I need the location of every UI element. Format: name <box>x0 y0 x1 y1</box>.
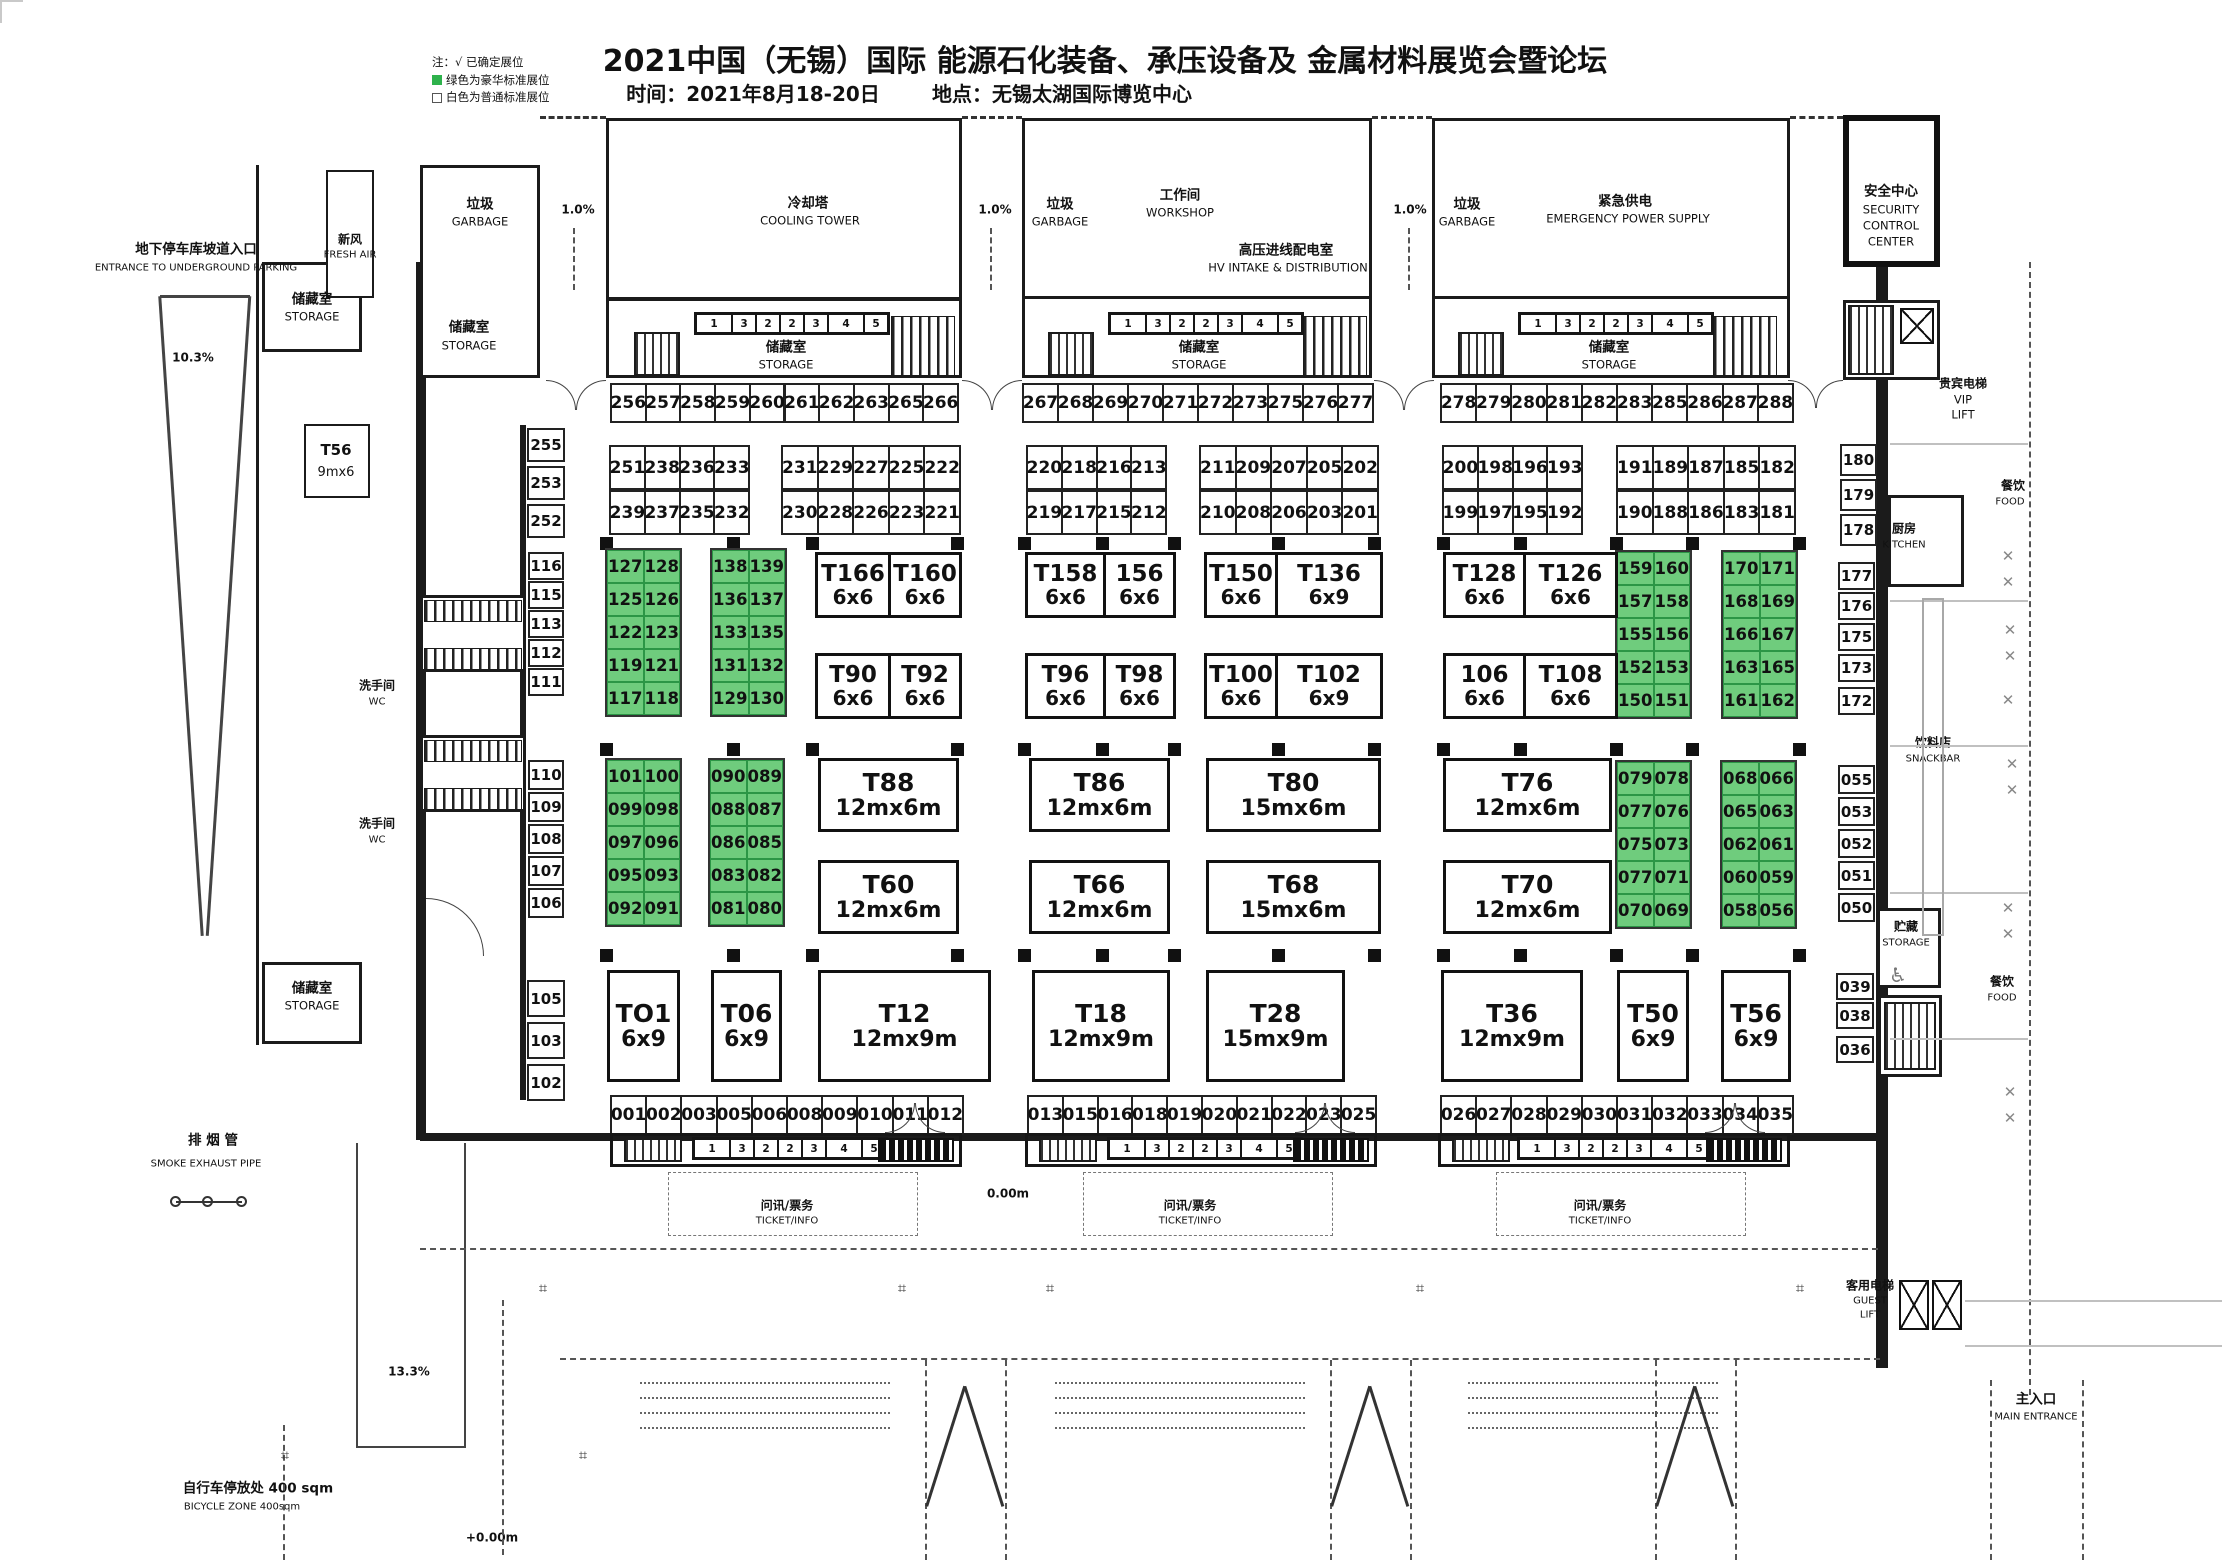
food_zh-label: 餐饮 <box>2001 479 2025 492</box>
booth-083: 083 <box>710 859 747 892</box>
booth-066: 066 <box>1759 762 1796 795</box>
food_zh-label: 餐饮 <box>1990 975 2014 988</box>
booth-T100: T1006x6 <box>1207 656 1275 716</box>
booth-T66: T6612mx6m <box>1029 860 1170 934</box>
booth-277: 277 <box>1337 383 1374 423</box>
stairs-icon <box>1458 332 1504 376</box>
booth-032: 032 <box>1651 1095 1688 1135</box>
booth-T56-side-size: 9mx6 <box>318 466 355 480</box>
guest-lift-icon <box>1899 1280 1929 1330</box>
booth-208: 208 <box>1235 490 1273 535</box>
ramp_pct-label: 1.0% <box>561 203 594 216</box>
booth-079: 079 <box>1617 762 1654 795</box>
stairs-icon <box>1848 305 1894 375</box>
booth-230: 230 <box>781 490 819 535</box>
booth-188: 188 <box>1652 490 1690 535</box>
dashed-boundary <box>925 1360 927 1560</box>
booth-086: 086 <box>710 826 747 859</box>
entrance-arrow-icon <box>1331 1386 1371 1507</box>
dashed-boundary <box>560 1358 1880 1360</box>
booth-T28: T2815mx9m <box>1206 970 1345 1082</box>
booth-198: 198 <box>1477 445 1514 490</box>
booth-130: 130 <box>749 682 786 715</box>
booth-202: 202 <box>1341 445 1379 490</box>
booth-036: 036 <box>1836 1036 1874 1063</box>
door-arc-icon <box>546 380 576 410</box>
mini-booth: 4 <box>1243 315 1277 332</box>
queue-rail-line <box>640 1382 890 1384</box>
booth-195: 195 <box>1512 490 1549 535</box>
column-marker <box>1437 949 1450 962</box>
legend-green-label: 绿色为豪华标准展位 <box>446 73 550 89</box>
booth-T150: T1506x6 <box>1207 555 1275 615</box>
booth-031: 031 <box>1616 1095 1653 1135</box>
truck-ramp <box>356 1143 466 1448</box>
booth-207: 207 <box>1270 445 1308 490</box>
column-marker <box>1168 949 1181 962</box>
booth-260: 260 <box>749 383 786 423</box>
booth-156: 156 <box>1654 618 1691 651</box>
booth-232: 232 <box>713 490 750 535</box>
kitchen_zh-label: 厨房 <box>1892 522 1916 535</box>
column-marker <box>1368 537 1381 550</box>
ticket_zh-label: 问讯/票务 <box>1164 1199 1216 1212</box>
booth-203: 203 <box>1306 490 1344 535</box>
booth-201: 201 <box>1341 490 1379 535</box>
booth-T76: T7612mx6m <box>1443 758 1612 832</box>
door-arc-icon <box>1788 380 1816 408</box>
door-marker-icon: ⌗ <box>1796 1279 1804 1297</box>
booth-253: 253 <box>527 466 565 500</box>
booth-090: 090 <box>710 760 747 793</box>
table-icon: ✕ <box>2004 621 2017 639</box>
booth-187: 187 <box>1687 445 1725 490</box>
booth-009: 009 <box>821 1095 858 1135</box>
booth-282: 282 <box>1581 383 1618 423</box>
legend: 注：√ 已确定展位 绿色为豪华标准展位 白色为普通标准展位 <box>432 55 550 108</box>
booth-219: 219 <box>1026 490 1063 535</box>
column-marker <box>1437 537 1450 550</box>
booth-029: 029 <box>1546 1095 1583 1135</box>
dashed-boundary <box>1990 1380 1992 1560</box>
hv_zh-label: 高压进线配电室 <box>1239 244 1334 259</box>
door-marker-icon: ⌗ <box>1416 1279 1424 1297</box>
table-icon: ✕ <box>2002 573 2015 591</box>
booth-131: 131 <box>712 649 749 682</box>
cooling_zh-label: 冷却塔 <box>788 197 829 212</box>
booth-027: 027 <box>1475 1095 1512 1135</box>
booth-093: 093 <box>644 859 681 892</box>
booth-155: 155 <box>1617 618 1654 651</box>
wc-stalls-icon <box>1303 316 1367 376</box>
dashed-boundary <box>1735 1360 1737 1560</box>
booth-T160: T1606x6 <box>888 555 959 615</box>
booth-073: 073 <box>1654 828 1691 861</box>
storage_zh-label: 储藏室 <box>292 982 333 997</box>
booth-T70: T7012mx6m <box>1443 860 1612 934</box>
booth-107: 107 <box>528 856 564 886</box>
booth-T128: T1286x6 <box>1446 555 1523 615</box>
booth-206: 206 <box>1270 490 1308 535</box>
booth-165: 165 <box>1760 651 1797 684</box>
booth-262: 262 <box>818 383 855 423</box>
booth-T12: T1212mx9m <box>818 970 991 1082</box>
booth-055: 055 <box>1838 765 1875 794</box>
column-marker <box>1514 537 1527 550</box>
storage_zh-label: 储藏室 <box>449 321 490 336</box>
cooling_en-label: COOLING TOWER <box>760 215 860 228</box>
wc-stalls-icon <box>1713 316 1777 376</box>
booth-T92: T926x6 <box>888 656 959 716</box>
booth-T108: T1086x6 <box>1523 656 1615 716</box>
booth-098: 098 <box>644 793 681 826</box>
booth-001: 001 <box>610 1095 647 1135</box>
mini-booth: 3 <box>1629 315 1651 332</box>
booth-226: 226 <box>852 490 890 535</box>
booth-101: 101 <box>607 760 644 793</box>
booth-T126: T1266x6 <box>1523 555 1615 615</box>
booth-015: 015 <box>1062 1095 1099 1135</box>
booth-163: 163 <box>1723 651 1760 684</box>
booth-256: 256 <box>610 383 647 423</box>
booth-225: 225 <box>888 445 926 490</box>
door-marker-icon: ⌗ <box>898 1279 906 1297</box>
wc_en-label: WC <box>369 697 386 708</box>
booth-268: 268 <box>1057 383 1094 423</box>
booth-050: 050 <box>1838 893 1875 922</box>
door-arc-icon <box>1404 380 1434 410</box>
booth-121: 121 <box>644 649 681 682</box>
column-marker <box>1610 537 1623 550</box>
booth-087: 087 <box>747 793 784 826</box>
fresh_en-label: FRESH AIR <box>324 250 377 261</box>
booth-103: 103 <box>527 1022 565 1059</box>
column-marker <box>1368 949 1381 962</box>
booth-T166: T1666x6 <box>818 555 888 615</box>
parking_zh-label: 地下停车库坡道入口 <box>135 243 257 258</box>
booth-167: 167 <box>1760 618 1797 651</box>
guest_en1-label: GUEST <box>1853 1296 1887 1307</box>
booth-122: 122 <box>607 616 644 649</box>
booth-252: 252 <box>527 504 565 538</box>
column-marker <box>806 537 819 550</box>
booth-091: 091 <box>644 892 681 925</box>
mini-booth: 3 <box>1147 315 1169 332</box>
door-marker-icon: ⌗ <box>281 1446 289 1464</box>
booth-T98: T986x6 <box>1103 656 1173 716</box>
wc-stalls-icon <box>424 788 522 810</box>
door-arc-icon <box>992 380 1022 410</box>
legend-white: 白色为普通标准展位 <box>432 90 550 106</box>
booth-171: 171 <box>1760 552 1797 585</box>
booth-185: 185 <box>1723 445 1761 490</box>
booth-069: 069 <box>1654 894 1691 927</box>
gray-guide-line <box>1890 892 2028 894</box>
booth-071: 071 <box>1654 861 1691 894</box>
booth-006: 006 <box>751 1095 788 1135</box>
stairs-icon <box>1048 332 1094 376</box>
storage_zh-label: 储藏室 <box>1589 341 1630 356</box>
storage_en-label: STORAGE <box>759 359 814 372</box>
booth-059: 059 <box>1759 861 1796 894</box>
booth-235: 235 <box>679 490 716 535</box>
booth-190: 190 <box>1616 490 1654 535</box>
workshop_en-label: WORKSHOP <box>1146 207 1214 220</box>
booth-082: 082 <box>747 859 784 892</box>
booth-028: 028 <box>1510 1095 1547 1135</box>
page-title: 2021中国（无锡）国际 能源石化装备、承压设备及 金属材料展览会暨论坛 <box>603 36 1607 80</box>
queue-rail-line <box>640 1427 890 1429</box>
booth-150: 150 <box>1617 684 1654 717</box>
column-marker <box>600 949 613 962</box>
booth-002: 002 <box>645 1095 682 1135</box>
security_en1-label: SECURITY <box>1863 204 1919 217</box>
booth-077: 077 <box>1617 861 1654 894</box>
t-booth-pair: T966x6T986x6 <box>1025 653 1176 719</box>
column-marker <box>1793 537 1806 550</box>
main_zh-label: 主入口 <box>2016 1393 2057 1408</box>
queue-rail-line <box>1055 1382 1305 1384</box>
booth-039: 039 <box>1836 973 1874 1000</box>
booth-056: 056 <box>1759 894 1796 927</box>
column-marker <box>1514 949 1527 962</box>
booth-118: 118 <box>644 682 681 715</box>
booth-153: 153 <box>1654 651 1691 684</box>
date-label: 时间：2021年8月18-20日 <box>626 78 880 107</box>
booth-T158: T1586x6 <box>1028 555 1103 615</box>
booth-070: 070 <box>1617 894 1654 927</box>
t-booth-pair: T1286x6T1266x6 <box>1443 552 1618 618</box>
vip_en2-label: LIFT <box>1951 409 1974 422</box>
storage_en-label: STORAGE <box>285 311 340 324</box>
legend-white-label: 白色为普通标准展位 <box>446 90 550 106</box>
booth-278: 278 <box>1440 383 1477 423</box>
fresh_zh-label: 新风 <box>338 233 362 246</box>
booth-211: 211 <box>1199 445 1237 490</box>
booth-160: 160 <box>1654 552 1691 585</box>
food_en-label: FOOD <box>1995 497 2024 508</box>
booth-060: 060 <box>1722 861 1759 894</box>
booth-285: 285 <box>1651 383 1688 423</box>
booth-127: 127 <box>607 550 644 583</box>
column-marker <box>1610 743 1623 756</box>
booth-287: 287 <box>1722 383 1759 423</box>
ramp_pct-label: 1.0% <box>1393 203 1426 216</box>
table-icon: ✕ <box>2002 691 2015 709</box>
booth-199: 199 <box>1442 490 1479 535</box>
booth-076: 076 <box>1654 795 1691 828</box>
security_en2-label: CONTROL <box>1863 220 1919 233</box>
kitchen_en-label: KITCHEN <box>1882 540 1925 551</box>
entrance-arrow-icon <box>964 1386 1004 1507</box>
door-arc-icon <box>1374 380 1404 410</box>
parking-ramp-line <box>159 296 204 936</box>
column-marker <box>1793 949 1806 962</box>
booth-175: 175 <box>1838 623 1875 651</box>
booth-182: 182 <box>1758 445 1796 490</box>
booth-106: 1066x6 <box>1446 656 1523 716</box>
mini-booth: 2 <box>1171 315 1193 332</box>
mini-booth: 2 <box>757 315 779 332</box>
dashed-boundary <box>990 228 992 290</box>
top-dashed-line <box>962 116 1022 119</box>
parking-ramp-line <box>160 295 250 298</box>
column-marker <box>1686 537 1699 550</box>
booth-152: 152 <box>1617 651 1654 684</box>
booth-251: 251 <box>609 445 646 490</box>
mini-booth: 1 <box>697 315 731 332</box>
booth-267: 267 <box>1022 383 1059 423</box>
door-arc-icon <box>426 898 484 956</box>
door-arc-icon <box>962 380 992 410</box>
dashed-boundary <box>420 1248 1878 1250</box>
booth-065: 065 <box>1722 795 1759 828</box>
dashed-boundary <box>1410 1360 1412 1560</box>
booth-105: 105 <box>527 980 565 1017</box>
queue-rail-line <box>1055 1412 1305 1414</box>
column-marker <box>1096 537 1109 550</box>
t-booth-pair: T906x6T926x6 <box>815 653 962 719</box>
booth-205: 205 <box>1306 445 1344 490</box>
column-marker <box>1368 743 1381 756</box>
table-icon: ✕ <box>2002 899 2015 917</box>
dashed-boundary <box>1655 1360 1657 1560</box>
stairs-icon <box>1884 1002 1936 1070</box>
legend-confirmed: 注：√ 已确定展位 <box>432 55 550 71</box>
stairs-icon <box>624 1138 682 1162</box>
stairs-icon <box>1452 1138 1510 1162</box>
booth-263: 263 <box>853 383 890 423</box>
parking-ramp-line <box>206 296 251 936</box>
emergency_zh-label: 紧急供电 <box>1598 195 1652 210</box>
booth-210: 210 <box>1199 490 1237 535</box>
booth-113: 113 <box>528 610 564 638</box>
column-marker <box>1018 949 1031 962</box>
workshop_zh-label: 工作间 <box>1160 189 1201 204</box>
storage_en-label: STORAGE <box>1882 938 1930 949</box>
booth-T18: T1812mx9m <box>1032 970 1170 1082</box>
wall-segment <box>416 262 426 1140</box>
booth-128: 128 <box>644 550 681 583</box>
column-marker <box>1793 743 1806 756</box>
booth-132: 132 <box>749 649 786 682</box>
booth-169: 169 <box>1760 585 1797 618</box>
column-marker <box>951 949 964 962</box>
booth-223: 223 <box>888 490 926 535</box>
dashed-boundary <box>1005 1360 1007 1560</box>
booth-077: 077 <box>1617 795 1654 828</box>
booth-259: 259 <box>714 383 751 423</box>
booth-220: 220 <box>1026 445 1063 490</box>
booth-217: 217 <box>1061 490 1098 535</box>
booth-T88: T8812mx6m <box>818 758 959 832</box>
booth-129: 129 <box>712 682 749 715</box>
exhibition-floor-plan: 2021中国（无锡）国际 能源石化装备、承压设备及 金属材料展览会暨论坛 时间：… <box>0 0 2222 1560</box>
entrance-arrow-icon <box>926 1386 966 1507</box>
booth-058: 058 <box>1722 894 1759 927</box>
booth-T56-side-label: T56 <box>320 442 351 459</box>
booth-133: 133 <box>712 616 749 649</box>
booth-166: 166 <box>1723 618 1760 651</box>
entrance-arrow-icon <box>1656 1386 1696 1507</box>
booth-138: 138 <box>712 550 749 583</box>
booth-173: 173 <box>1838 654 1875 682</box>
table-icon: ✕ <box>2002 547 2015 565</box>
booth-068: 068 <box>1722 762 1759 795</box>
vip_en1-label: VIP <box>1954 394 1972 407</box>
guest_en2-label: LIFT <box>1860 1310 1880 1321</box>
pct133-label: 13.3% <box>388 1365 430 1378</box>
booth-052: 052 <box>1838 829 1875 858</box>
pct103-label: 10.3% <box>172 351 214 364</box>
bike_zh-label: 自行车停放处 400 sqm <box>183 1482 333 1497</box>
booth-TO1: TO16x9 <box>607 970 680 1082</box>
booth-003: 003 <box>680 1095 717 1135</box>
booth-221: 221 <box>923 490 961 535</box>
booth-168: 168 <box>1723 585 1760 618</box>
booth-137: 137 <box>749 583 786 616</box>
booth-075: 075 <box>1617 828 1654 861</box>
door-marker-icon: ⌗ <box>1046 1279 1054 1297</box>
booth-229: 229 <box>817 445 855 490</box>
booth-257: 257 <box>645 383 682 423</box>
mini-booth-row: 1322345 <box>694 312 890 335</box>
booth-126: 126 <box>644 583 681 616</box>
booth-157: 157 <box>1617 585 1654 618</box>
booth-216: 216 <box>1096 445 1133 490</box>
booth-092: 092 <box>607 892 644 925</box>
booth-218: 218 <box>1061 445 1098 490</box>
column-marker <box>806 949 819 962</box>
mini-booth: 2 <box>1605 315 1627 332</box>
gray-guide-line <box>1890 600 2028 602</box>
column-marker <box>1514 743 1527 756</box>
column-marker <box>1018 537 1031 550</box>
smoke_zh-label: 排 烟 管 <box>188 1134 238 1149</box>
booth-280: 280 <box>1510 383 1547 423</box>
table-icon: ✕ <box>2004 1083 2017 1101</box>
queue-rail-line <box>1468 1382 1718 1384</box>
booth-T36: T3612mx9m <box>1441 970 1583 1082</box>
mini-booth: 2 <box>1195 315 1217 332</box>
booth-228: 228 <box>817 490 855 535</box>
entrance-arrow-icon <box>1369 1386 1409 1507</box>
booth-108: 108 <box>528 824 564 854</box>
column-marker <box>1168 743 1181 756</box>
mini-booth: 3 <box>805 315 827 332</box>
dashed-boundary <box>573 228 575 290</box>
booth-109: 109 <box>528 792 564 822</box>
top-dashed-line <box>1372 116 1432 119</box>
legend-confirmed-label: 注：√ 已确定展位 <box>432 55 523 71</box>
door-arc-icon <box>1816 380 1844 408</box>
booth-265: 265 <box>888 383 925 423</box>
mini-booth: 4 <box>829 315 863 332</box>
garbage_zh-label: 垃圾 <box>1047 198 1074 213</box>
booth-078: 078 <box>1654 762 1691 795</box>
booth-238: 238 <box>644 445 681 490</box>
booth-T90: T906x6 <box>818 656 888 716</box>
booth-125: 125 <box>607 583 644 616</box>
queue-rail-line <box>1468 1397 1718 1399</box>
table-icon: ✕ <box>2006 755 2019 773</box>
booth-099: 099 <box>607 793 644 826</box>
booth-080: 080 <box>747 892 784 925</box>
wc_en-label: WC <box>369 835 386 846</box>
emergency_en-label: EMERGENCY POWER SUPPLY <box>1546 213 1710 226</box>
booth-192: 192 <box>1546 490 1583 535</box>
booth-018: 018 <box>1131 1095 1168 1135</box>
